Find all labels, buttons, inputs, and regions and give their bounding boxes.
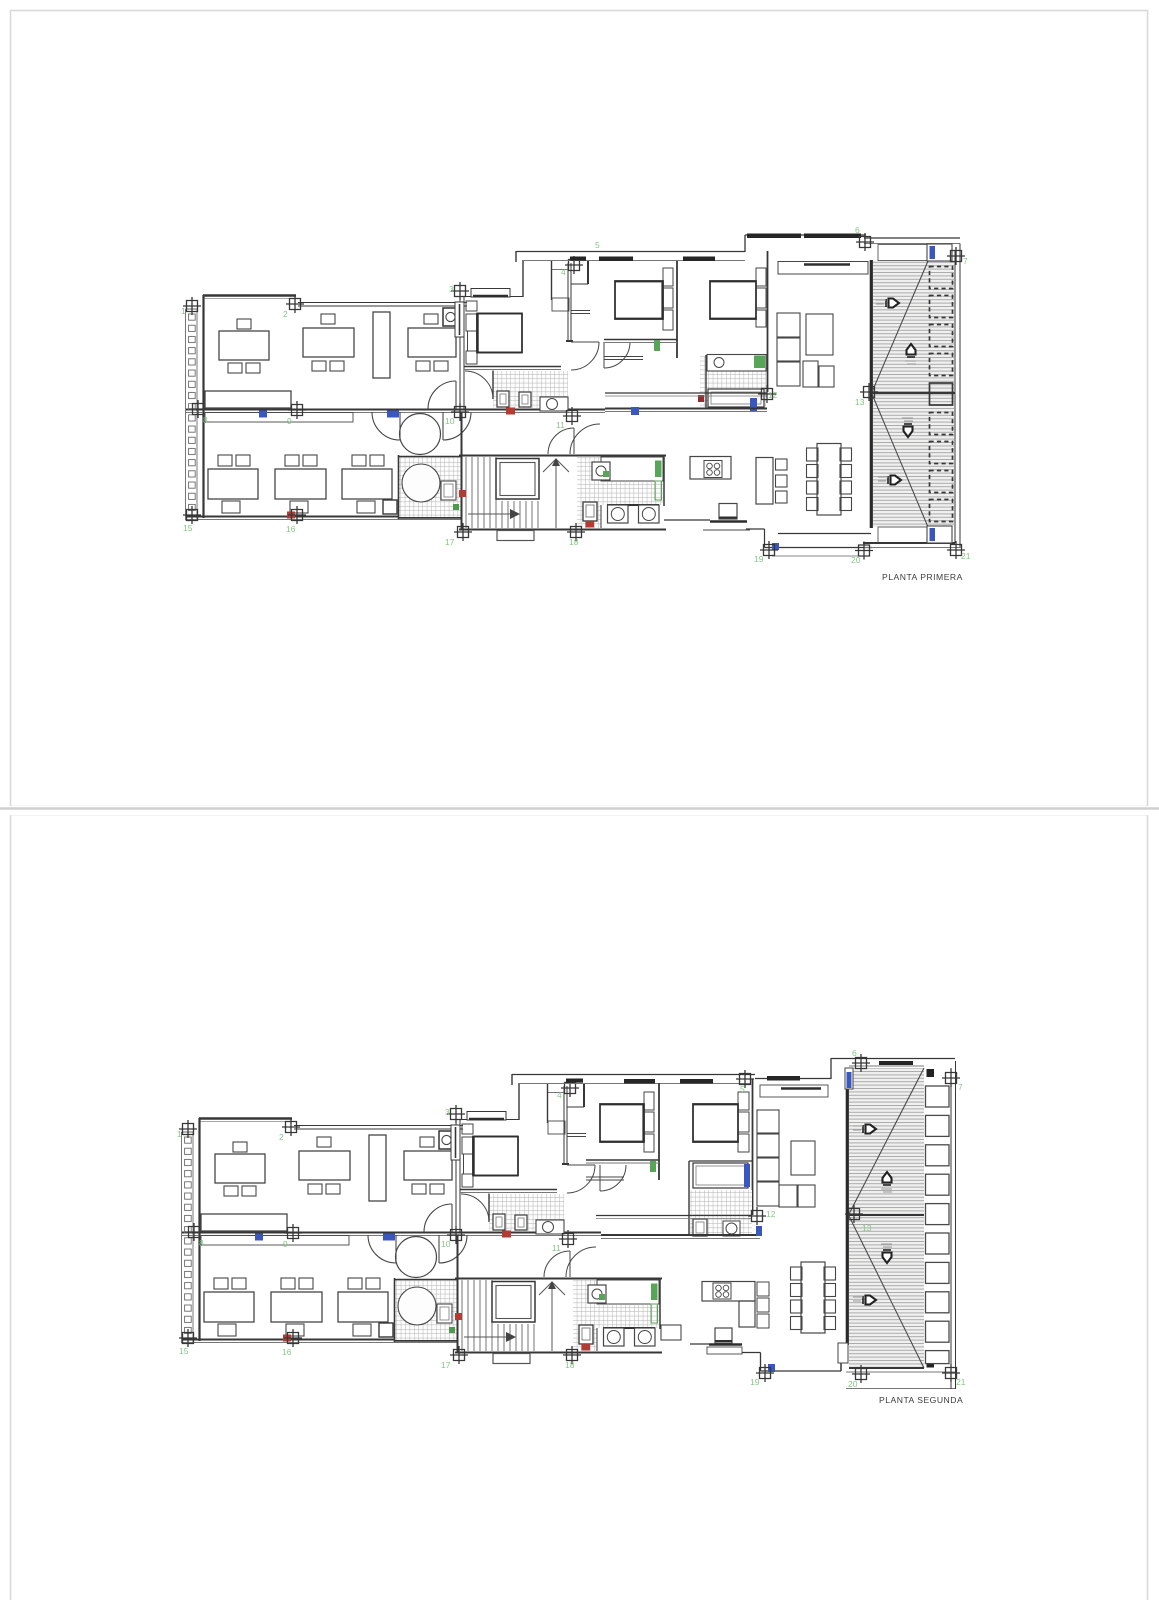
svg-text:7: 7 [963, 256, 968, 266]
svg-text:19: 19 [750, 1377, 760, 1387]
svg-text:21: 21 [961, 551, 971, 561]
svg-text:PLANTA PRIMERA: PLANTA PRIMERA [882, 572, 963, 582]
svg-text:6: 6 [852, 1048, 857, 1058]
svg-text:20: 20 [848, 1379, 858, 1389]
svg-text:PLANTA SEGUNDA: PLANTA SEGUNDA [879, 1395, 963, 1405]
svg-text:5: 5 [595, 240, 600, 250]
svg-text:7: 7 [958, 1082, 963, 1092]
svg-text:13: 13 [862, 1223, 872, 1233]
svg-text:12: 12 [768, 390, 778, 400]
svg-text:19: 19 [754, 554, 764, 564]
svg-text:13: 13 [855, 397, 865, 407]
svg-text:12: 12 [766, 1209, 776, 1219]
svg-text:21: 21 [956, 1377, 966, 1387]
svg-text:6: 6 [855, 225, 860, 235]
svg-text:20: 20 [851, 555, 861, 565]
svg-text:5: 5 [740, 1084, 745, 1094]
